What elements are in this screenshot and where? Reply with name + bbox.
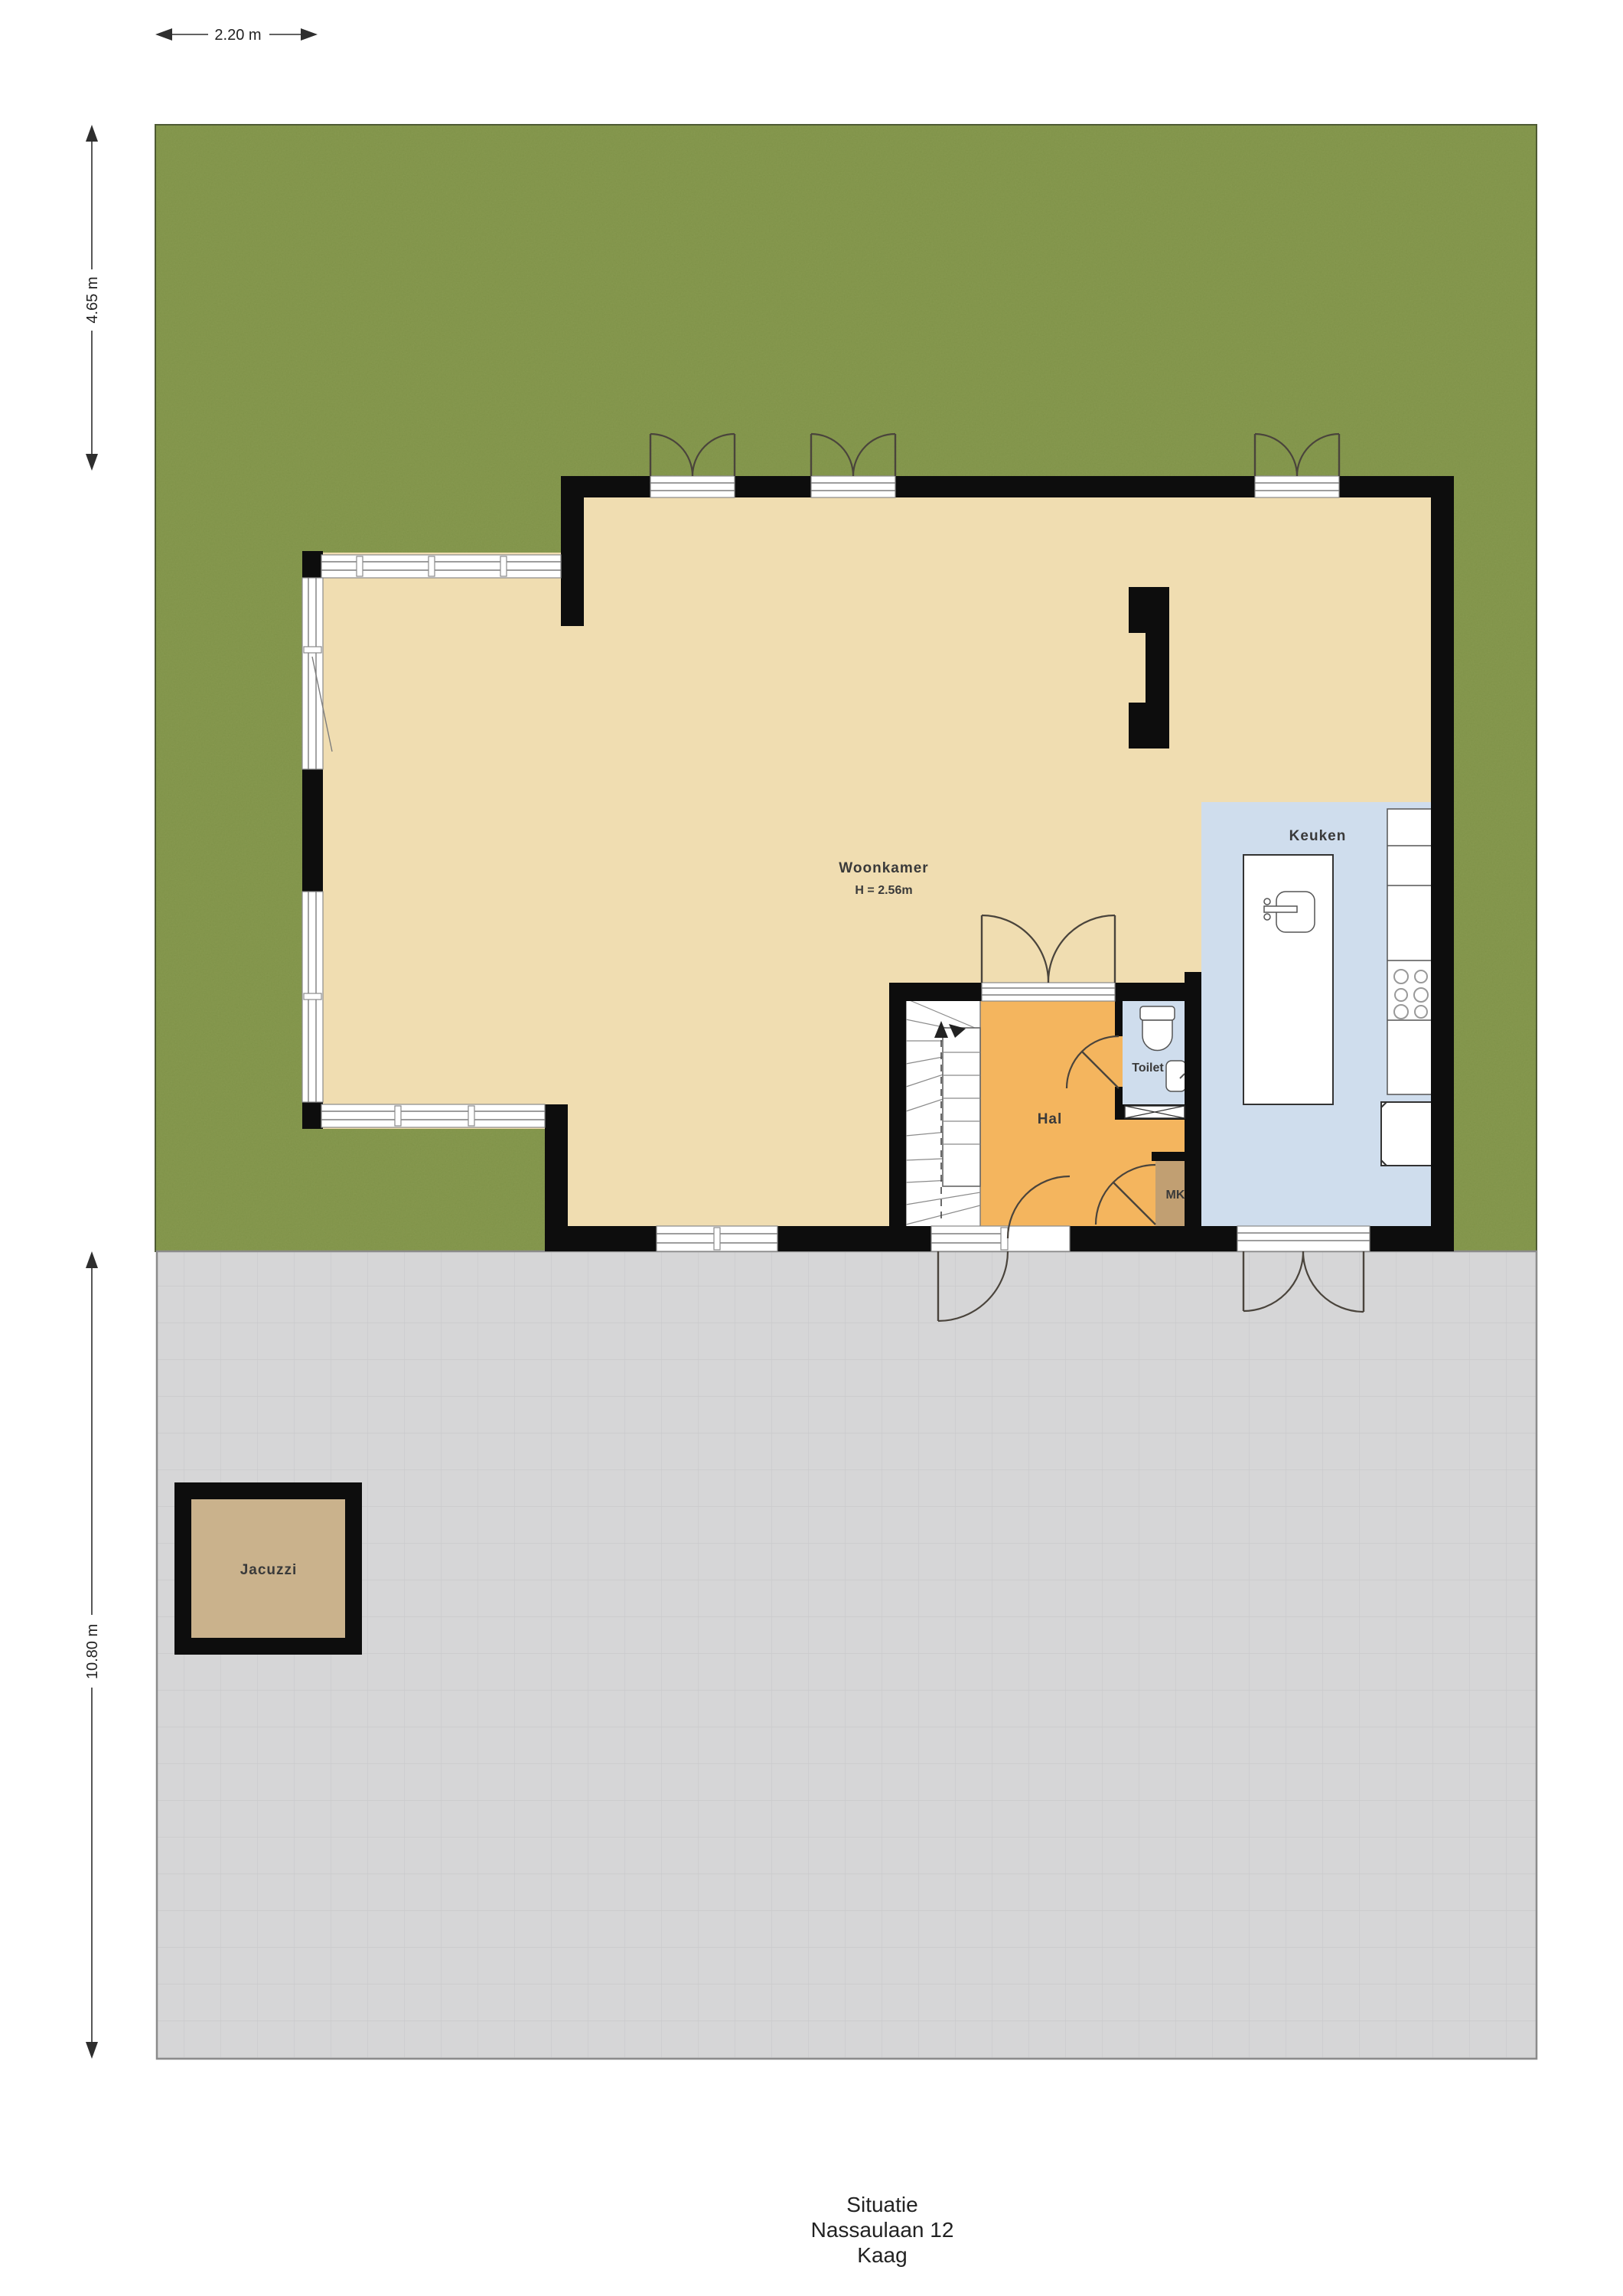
dim-label-terrace-depth: 10.80 m — [84, 1624, 101, 1679]
label-jacuzzi: Jacuzzi — [240, 1562, 298, 1578]
floorplan-drawing: 2.20 m 4.65 m 10.80 m Woonkamer H = 2.56… — [0, 0, 1623, 2296]
dim-label-garden-depth: 4.65 m — [84, 276, 101, 323]
caption-address: Nassaulaan 12 — [811, 2218, 954, 2242]
label-woonkamer-height: H = 2.56m — [855, 884, 912, 897]
floorplan-page: 2.20 m 4.65 m 10.80 m Woonkamer H = 2.56… — [0, 0, 1623, 2296]
kitchen-island — [1243, 855, 1333, 1104]
toilet-bowl-icon — [1140, 1006, 1175, 1020]
kitchen-appliance — [1381, 1102, 1432, 1166]
kitchen-counter — [1381, 809, 1432, 1166]
label-keuken: Keuken — [1289, 828, 1347, 844]
terrace-paving — [157, 1251, 1537, 2059]
label-hal: Hal — [1038, 1111, 1063, 1127]
dim-label-garden-width: 2.20 m — [214, 27, 261, 44]
caption-city: Kaag — [857, 2243, 907, 2267]
label-toilet: Toilet — [1132, 1062, 1164, 1075]
caption-title: Situatie — [846, 2193, 917, 2216]
label-mk: MK — [1166, 1189, 1185, 1202]
shaft-hatch — [1125, 1106, 1185, 1118]
label-woonkamer: Woonkamer — [839, 860, 928, 876]
rear-window — [657, 1226, 777, 1251]
